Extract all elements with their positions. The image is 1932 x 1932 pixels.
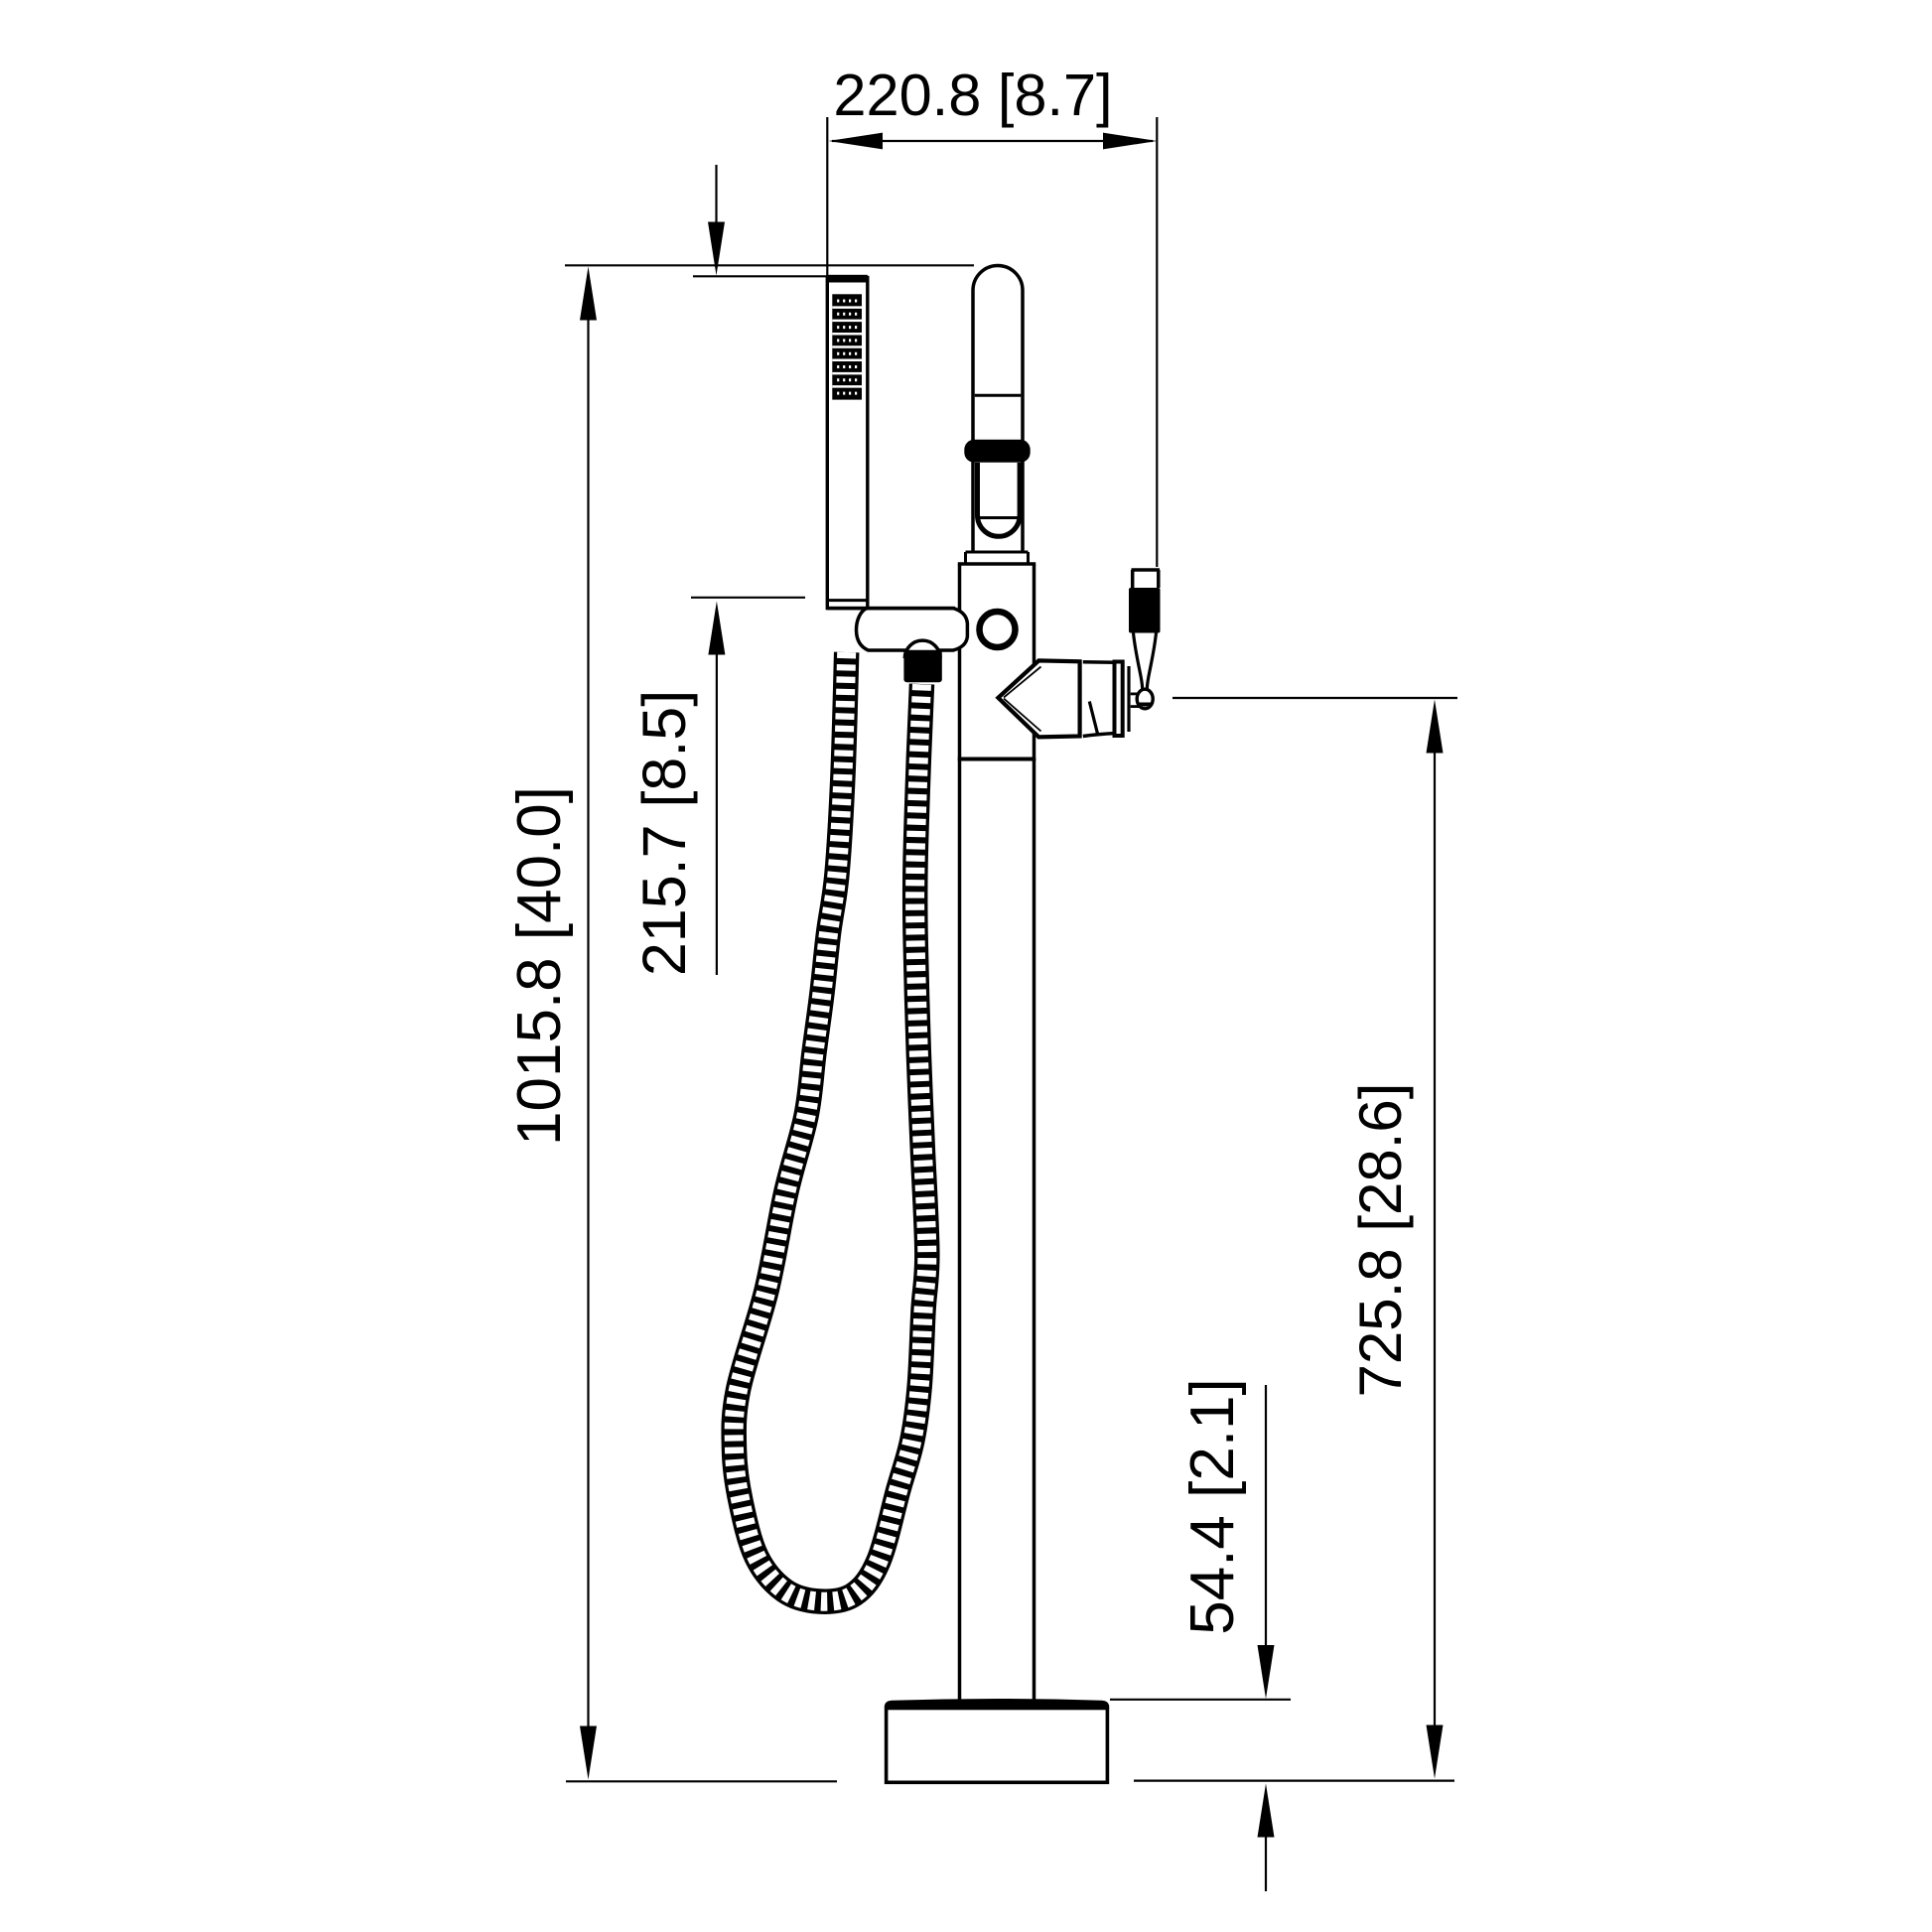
svg-text:215.7 [8.5]: 215.7 [8.5] (630, 690, 698, 976)
svg-text:220.8 [8.7]: 220.8 [8.7] (833, 62, 1112, 128)
svg-text:725.8 [28.6]: 725.8 [28.6] (1347, 1083, 1414, 1398)
svg-text:54.4 [2.1]: 54.4 [2.1] (1178, 1378, 1247, 1635)
svg-text:1015.8 [40.0]: 1015.8 [40.0] (505, 786, 574, 1146)
